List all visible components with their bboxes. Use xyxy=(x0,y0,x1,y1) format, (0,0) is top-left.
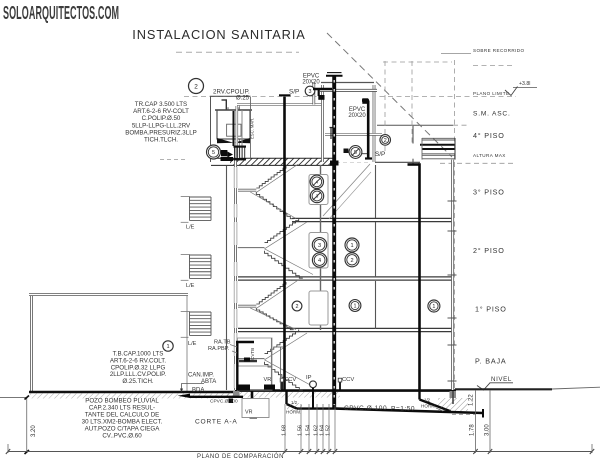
svg-text:3° PISO: 3° PISO xyxy=(473,188,505,197)
svg-text:1.68: 1.68 xyxy=(281,425,287,436)
svg-text:CORTE A-A: CORTE A-A xyxy=(195,419,238,426)
svg-text:1: 1 xyxy=(166,344,169,350)
svg-text:1.52: 1.52 xyxy=(325,425,331,436)
svg-text:AUT.POZO C/TAPA CIEGA: AUT.POZO C/TAPA CIEGA xyxy=(85,426,161,433)
svg-text:INSTALACION SANITARIA: INSTALACION SANITARIA xyxy=(132,27,305,42)
svg-text:3: 3 xyxy=(316,194,319,199)
svg-text:1/2: 1/2 xyxy=(291,400,298,405)
svg-text:BDA.: BDA. xyxy=(192,388,206,394)
svg-text:5: 5 xyxy=(212,150,215,156)
svg-text:SOLOARQUITECTOS.COM: SOLOARQUITECTOS.COM xyxy=(3,4,119,24)
svg-text:1.56: 1.56 xyxy=(297,425,303,436)
svg-text:2RV.CPOLIP.: 2RV.CPOLIP. xyxy=(213,89,250,96)
svg-text:RA.TB: RA.TB xyxy=(214,340,231,346)
svg-text:CV..PVC.Ø.60: CV..PVC.Ø.60 xyxy=(102,433,142,440)
svg-text:CPVC.Ø.100: CPVC.Ø.100 xyxy=(344,405,387,412)
svg-text:CPVC.Ø.100: CPVC.Ø.100 xyxy=(210,399,238,405)
svg-text:TR.CAP 3.500 LTS: TR.CAP 3.500 LTS xyxy=(135,101,187,108)
svg-text:L/E: L/E xyxy=(186,225,195,231)
svg-text:HORM.: HORM. xyxy=(286,410,301,415)
svg-text:Ø.25.TICH.: Ø.25.TICH. xyxy=(122,378,154,385)
svg-text:5LLP-LLPG-LLL.2RV: 5LLP-LLPG-LLL.2RV xyxy=(132,122,191,129)
svg-text:4: 4 xyxy=(318,258,321,264)
svg-text:NIVEL: NIVEL xyxy=(491,376,512,383)
svg-text:CAP.2.340 LTS RESUL-: CAP.2.340 LTS RESUL- xyxy=(89,405,155,412)
svg-text:HORM.: HORM. xyxy=(421,404,436,409)
svg-text:S/P: S/P xyxy=(289,89,299,96)
svg-text:PLANO LIMITE: PLANO LIMITE xyxy=(473,91,509,96)
svg-text:PLANO DE COMPARACIÓN: PLANO DE COMPARACIÓN xyxy=(197,453,284,460)
svg-text:CCV: CCV xyxy=(342,377,354,383)
svg-text:1: 1 xyxy=(354,303,357,309)
svg-text:ESC. MAR.: ESC. MAR. xyxy=(250,118,255,139)
svg-text:TICH.TLCH.: TICH.TLCH. xyxy=(144,137,178,144)
svg-text:IP: IP xyxy=(306,375,312,381)
svg-text:L/E: L/E xyxy=(188,341,197,347)
svg-text:C.POLIP.Ø.50: C.POLIP.Ø.50 xyxy=(142,115,181,122)
svg-text:BOMBA.PRESURIZ.3LLP: BOMBA.PRESURIZ.3LLP xyxy=(125,129,197,136)
svg-text:1° PISO: 1° PISO xyxy=(475,305,507,314)
svg-text:ART.6-2-6 RV-COLT: ART.6-2-6 RV-COLT xyxy=(133,108,189,115)
svg-text:L/E: L/E xyxy=(186,283,195,289)
svg-text:VR: VR xyxy=(264,377,272,383)
svg-text:4: 4 xyxy=(316,179,319,184)
svg-text:S/P: S/P xyxy=(375,151,385,158)
svg-text:3.20: 3.20 xyxy=(31,425,37,437)
svg-text:5: 5 xyxy=(354,150,357,156)
svg-text:1.78: 1.78 xyxy=(470,424,476,436)
svg-text:P=1:50: P=1:50 xyxy=(391,406,415,413)
svg-text:1.22: 1.22 xyxy=(469,394,475,406)
svg-text:2° PISO: 2° PISO xyxy=(473,246,505,255)
svg-text:1: 1 xyxy=(350,243,353,249)
svg-text:1.54: 1.54 xyxy=(305,425,311,436)
svg-text:20X20: 20X20 xyxy=(348,113,366,119)
svg-text:CCV: CCV xyxy=(284,377,296,383)
svg-text:ALTURA MAX: ALTURA MAX xyxy=(473,153,506,158)
svg-text:4° PISO: 4° PISO xyxy=(473,131,505,140)
svg-text:1: 1 xyxy=(432,304,435,310)
svg-text:SOBRE RECORRIDO: SOBRE RECORRIDO xyxy=(473,48,524,53)
svg-text:2: 2 xyxy=(384,138,387,144)
svg-text:Ø.25: Ø.25 xyxy=(236,96,250,102)
svg-text:S.M. ASC.: S.M. ASC. xyxy=(473,111,511,118)
svg-text:3: 3 xyxy=(309,89,312,95)
svg-text:2: 2 xyxy=(350,258,353,264)
svg-text:CAN.IMP.: CAN.IMP. xyxy=(188,373,214,379)
svg-text:2: 2 xyxy=(194,83,198,90)
svg-text:P. BAJA: P. BAJA xyxy=(475,357,506,366)
svg-text:ABTA: ABTA xyxy=(201,379,216,385)
svg-text:POZO BOMBEO PLUVIAL: POZO BOMBEO PLUVIAL xyxy=(85,398,159,405)
svg-text:3.00: 3.00 xyxy=(485,424,491,436)
svg-text:+3.8l: +3.8l xyxy=(519,81,530,87)
svg-text:VR: VR xyxy=(245,410,253,416)
svg-text:20X20: 20X20 xyxy=(302,80,320,86)
svg-text:3: 3 xyxy=(318,243,321,249)
svg-text:TANTE DEL CALCULO DE: TANTE DEL CALCULO DE xyxy=(85,412,160,419)
svg-text:CVTB: CVTB xyxy=(250,348,255,360)
svg-text:30 LTS.XM2-BOMBA ELECT.: 30 LTS.XM2-BOMBA ELECT. xyxy=(82,419,163,426)
svg-text:2: 2 xyxy=(296,304,299,310)
svg-text:1/2: 1/2 xyxy=(424,398,431,403)
svg-text:RA.PBP.: RA.PBP. xyxy=(208,346,230,352)
